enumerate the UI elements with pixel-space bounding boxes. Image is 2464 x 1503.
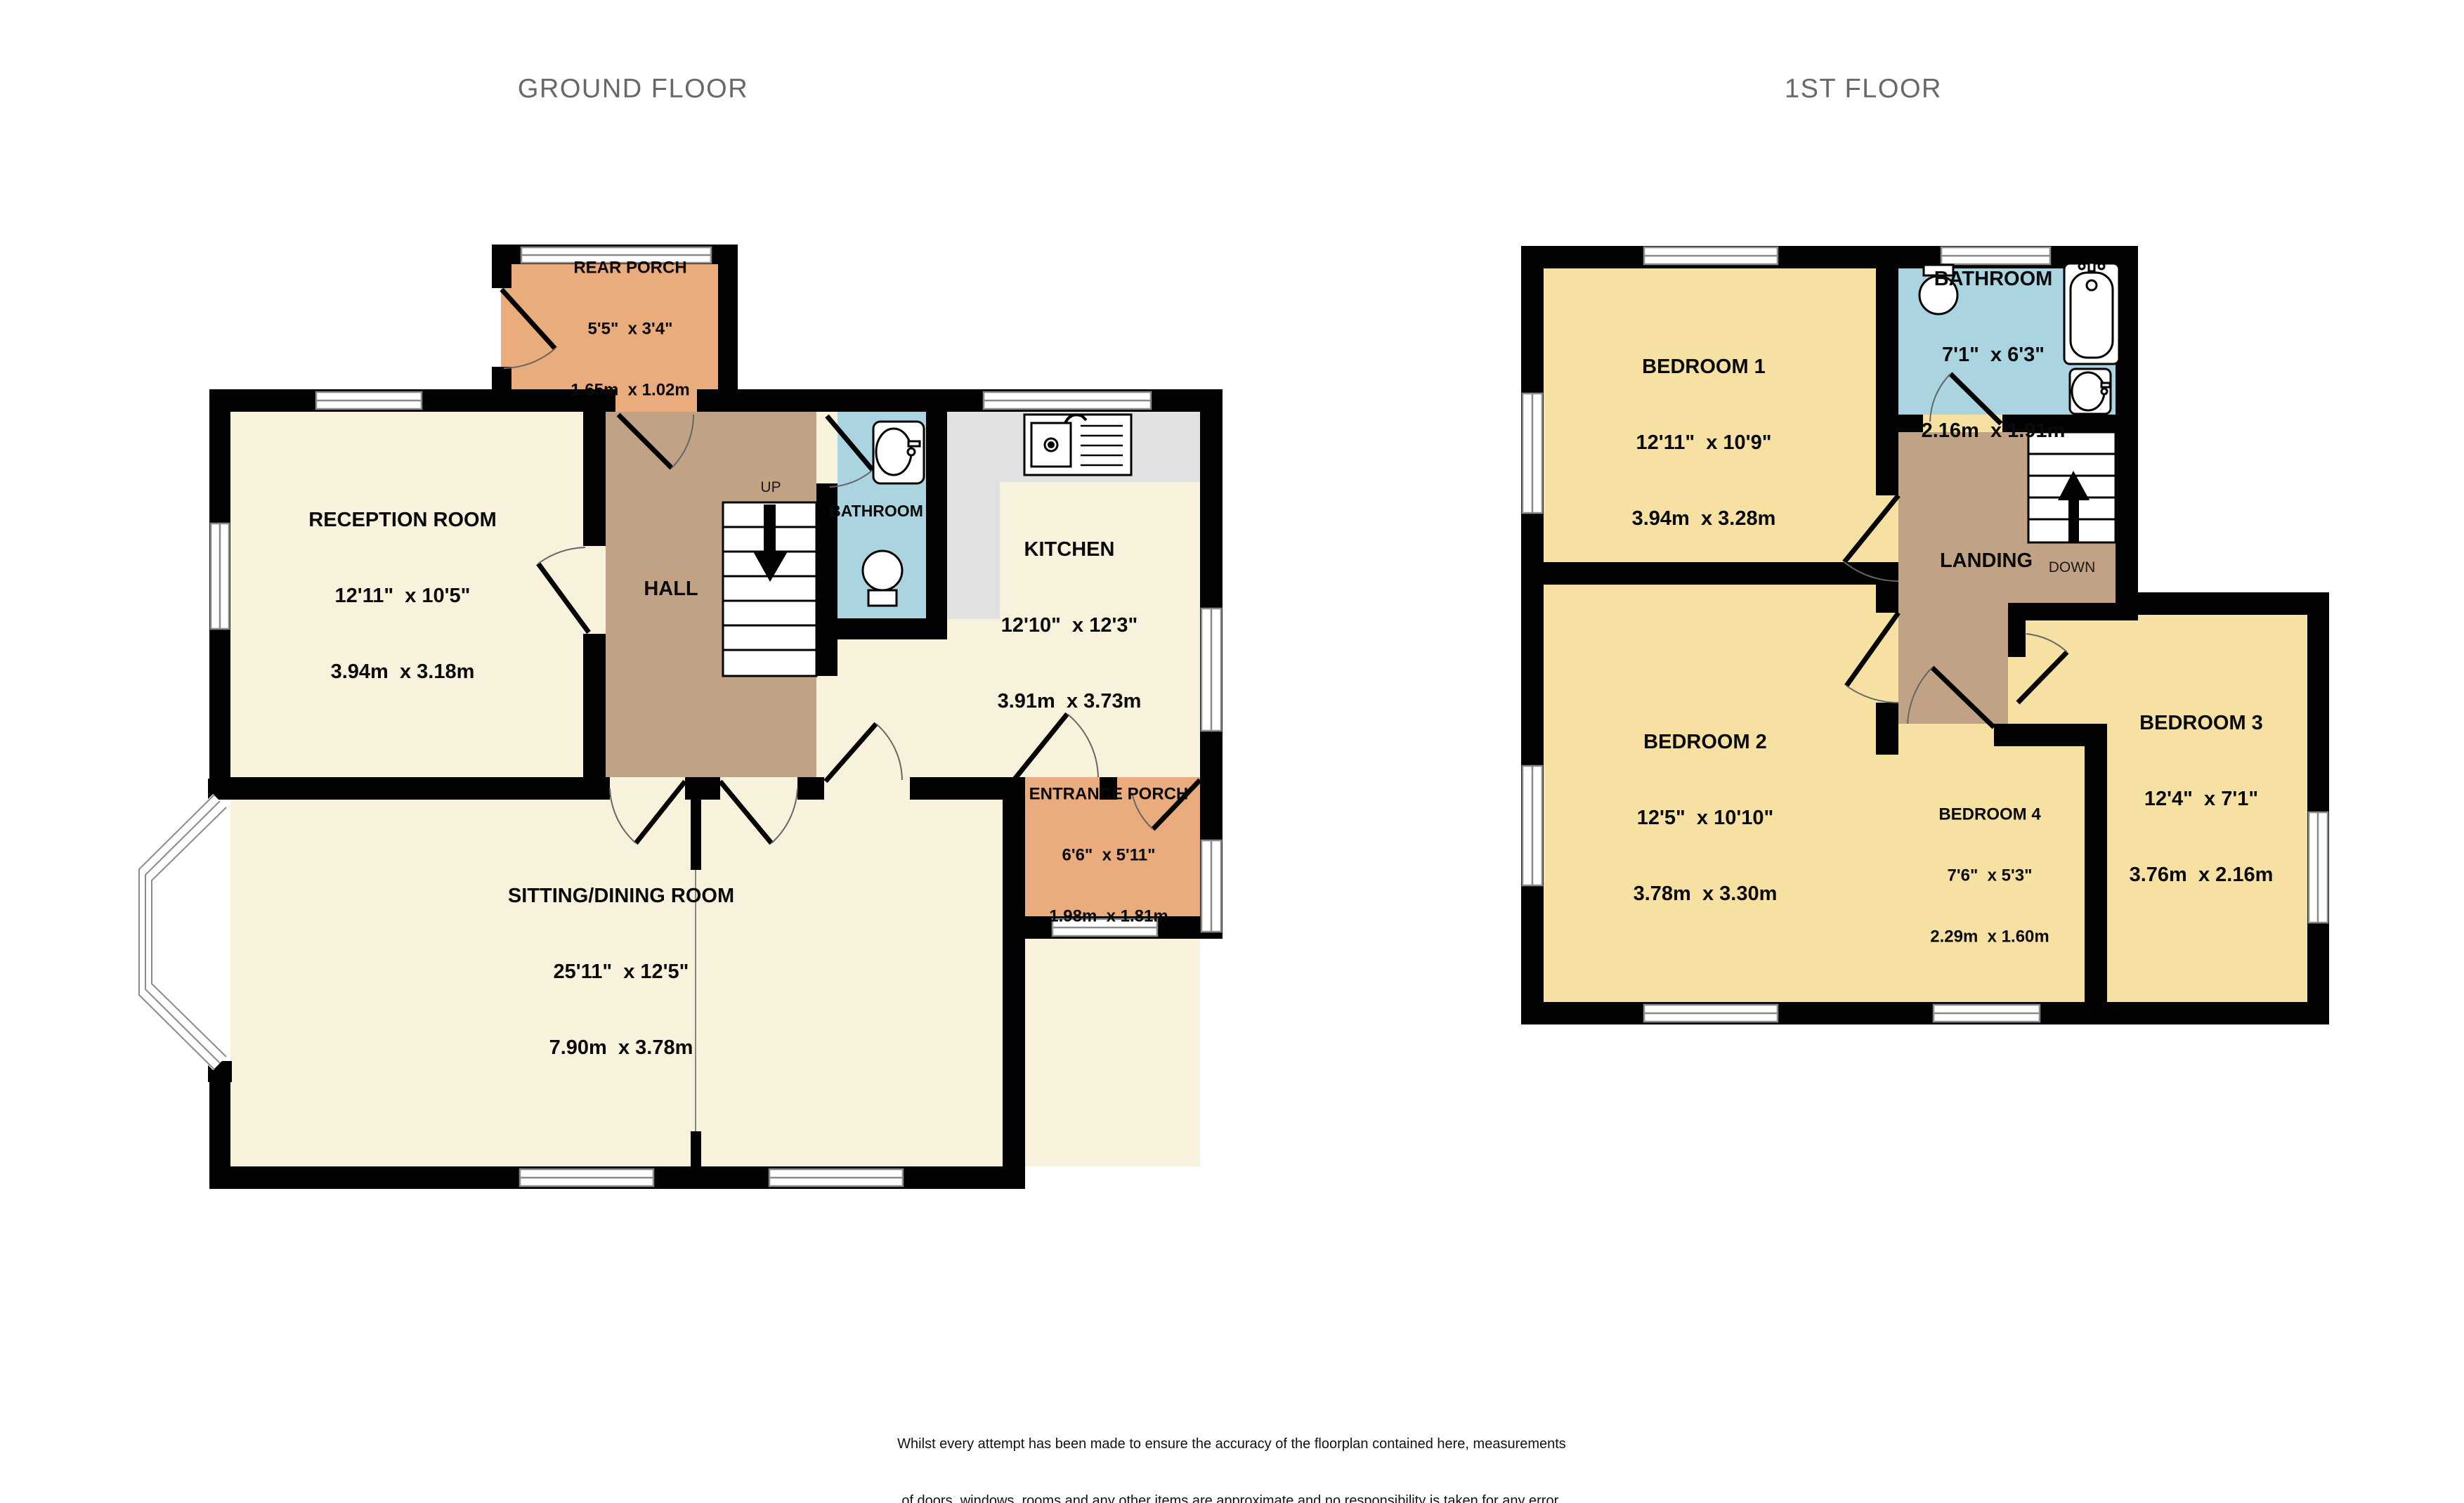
room-name: REAR PORCH <box>571 258 689 278</box>
room-label-bedroom-3: BEDROOM 3 12'4" x 7'1" 3.76m x 2.16m <box>2130 660 2274 938</box>
room-name: SITTING/DINING ROOM <box>508 883 734 909</box>
stairs-down-label: DOWN <box>2049 559 2096 576</box>
room-name: RECEPTION ROOM <box>308 507 496 533</box>
room-size-metric: 1.98m x 1.81m <box>1029 906 1189 927</box>
kitchen-sink-icon <box>1024 415 1131 475</box>
room-label-bedroom-4: BEDROOM 4 7'6" x 5'3" 2.29m x 1.60m <box>1930 764 2049 988</box>
room-size-imperial: 12'11" x 10'9" <box>1632 430 1776 455</box>
room-label-bedroom-1: BEDROOM 1 12'11" x 10'9" 3.94m x 3.28m <box>1632 304 1776 582</box>
room-size-metric: 7.90m x 3.78m <box>508 1035 734 1060</box>
room-size-metric: 1.65m x 1.02m <box>571 380 689 401</box>
room-size-imperial: 12'4" x 7'1" <box>2130 786 2274 812</box>
room-size-metric: 3.76m x 2.16m <box>2130 862 2274 887</box>
room-name: KITCHEN <box>998 537 1142 562</box>
room-size-imperial: 12'10" x 12'3" <box>998 613 1142 638</box>
room-label-landing: LANDING <box>1940 497 2033 624</box>
bay-window <box>139 795 226 1069</box>
room-label-hall: HALL <box>644 526 698 652</box>
room-size-imperial: 6'6" x 5'11" <box>1029 845 1189 866</box>
sink-icon <box>2070 369 2111 414</box>
room-size-metric: 2.29m x 1.60m <box>1930 927 2049 947</box>
room-name: BEDROOM 4 <box>1930 805 2049 825</box>
room-size-imperial: 12'5" x 10'10" <box>1634 805 1778 831</box>
room-size-imperial: 25'11" x 12'5" <box>508 959 734 984</box>
room-label-rear-porch: REAR PORCH 5'5" x 3'4" 1.65m x 1.02m <box>571 217 689 441</box>
room-name: BEDROOM 1 <box>1632 354 1776 379</box>
stairs-icon <box>723 502 816 676</box>
disclaimer-line: of doors, windows, rooms and any other i… <box>894 1492 1570 1503</box>
ground-floor-title: GROUND FLOOR <box>518 74 748 105</box>
room-size-metric: 3.94m x 3.18m <box>308 659 496 684</box>
floorplan-graphics <box>0 0 2464 1503</box>
room-name: BEDROOM 2 <box>1634 729 1778 755</box>
room-label-bathroom-1f: BATHROOM 7'1" x 6'3" 2.16m x 1.91m <box>1922 216 2066 494</box>
room-size-metric: 3.94m x 3.28m <box>1632 506 1776 531</box>
room-name: HALL <box>644 576 698 601</box>
room-size-imperial: 7'6" x 5'3" <box>1930 866 2049 886</box>
room-size-metric: 3.91m x 3.73m <box>998 689 1142 714</box>
room-name: BATHROOM <box>829 501 923 521</box>
first-floor-title: 1ST FLOOR <box>1785 74 1942 105</box>
stairs-up-label: UP <box>760 479 781 496</box>
room-label-entrance-porch: ENTRANCE PORCH 6'6" x 5'11" 1.98m x 1.81… <box>1029 743 1189 968</box>
room-name: BATHROOM <box>1922 266 2066 292</box>
room-label-kitchen: KITCHEN 12'10" x 12'3" 3.91m x 3.73m <box>998 486 1142 764</box>
room-size-imperial: 5'5" x 3'4" <box>571 319 689 339</box>
room-name: LANDING <box>1940 548 2033 573</box>
room-size-imperial: 7'1" x 6'3" <box>1922 342 2066 367</box>
room-name: BEDROOM 3 <box>2130 710 2274 736</box>
disclaimer-line: Whilst every attempt has been made to en… <box>894 1435 1570 1454</box>
room-name: ENTRANCE PORCH <box>1029 784 1189 805</box>
room-label-bedroom-2: BEDROOM 2 12'5" x 10'10" 3.78m x 3.30m <box>1634 679 1778 957</box>
room-label-reception-room: RECEPTION ROOM 12'11" x 10'5" 3.94m x 3.… <box>308 457 496 735</box>
room-size-metric: 2.16m x 1.91m <box>1922 418 2066 443</box>
room-label-bathroom-gf: BATHROOM <box>829 462 923 560</box>
disclaimer-text: Whilst every attempt has been made to en… <box>894 1397 1570 1503</box>
room-size-imperial: 12'11" x 10'5" <box>308 583 496 609</box>
floorplan: GROUND FLOOR 1ST FLOOR REAR PORCH 5'5" x… <box>0 0 2464 1503</box>
room-label-sitting-dining-room: SITTING/DINING ROOM 25'11" x 12'5" 7.90m… <box>508 833 734 1111</box>
kitchen-counter-side <box>947 482 1000 619</box>
bathtub-icon <box>2064 263 2119 364</box>
room-size-metric: 3.78m x 3.30m <box>1634 881 1778 906</box>
